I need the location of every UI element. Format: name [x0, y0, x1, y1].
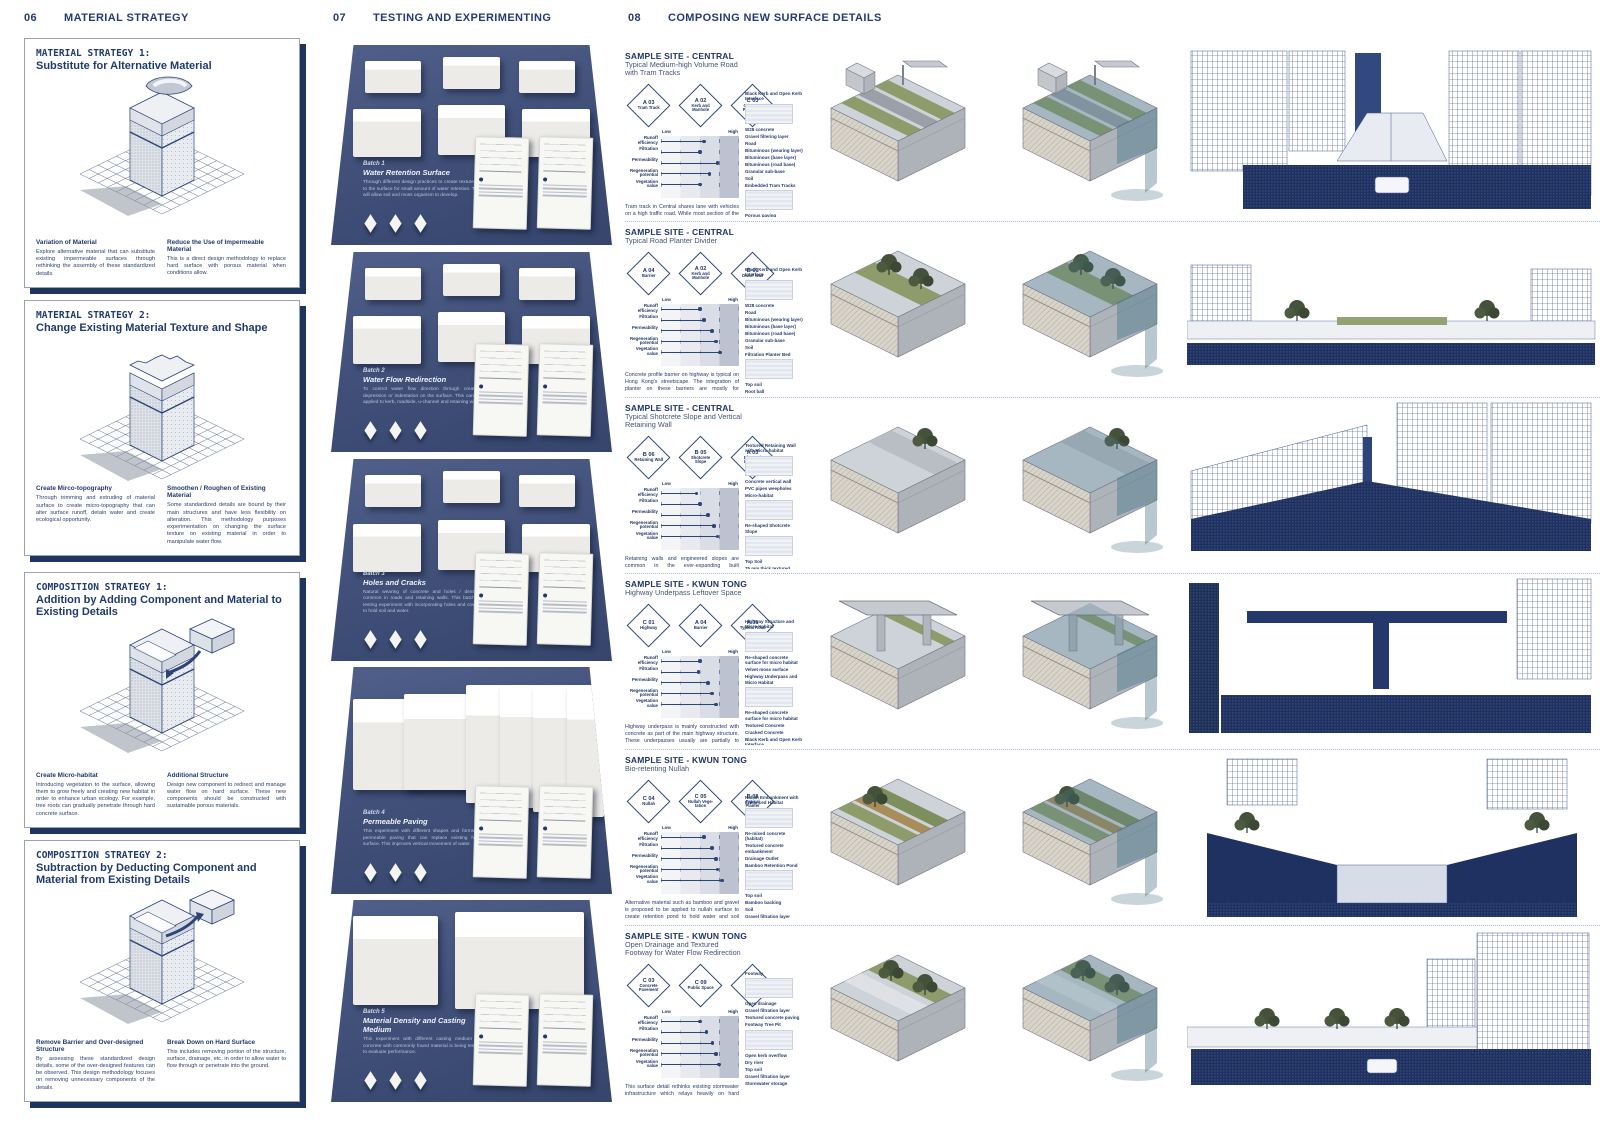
- chart-plot: LowHigh: [661, 656, 739, 718]
- strategy-subheading: Smoothen / Roughen of Existing Material: [167, 485, 286, 499]
- sample-shape-icon: [389, 214, 401, 233]
- strategy-illustration: [25, 83, 299, 215]
- legend-swatch: [745, 632, 793, 652]
- strategy-body: This is a direct design methodology to r…: [167, 256, 286, 278]
- batch-title: Water Retention Surface: [363, 168, 481, 177]
- batch-description: This experiment with different casting m…: [363, 1037, 481, 1056]
- metric-value-dot: [698, 502, 702, 506]
- site-description: Highway underpass is mainly constructed …: [625, 724, 739, 745]
- legend-item: Footway: [745, 971, 803, 976]
- metric-value-line: [661, 504, 700, 505]
- metric-value-line: [661, 704, 716, 705]
- row-divider: [625, 573, 1600, 574]
- legend-item: Bituminous (base layer): [745, 155, 803, 160]
- chart-plot: LowHigh: [661, 832, 739, 894]
- legend-item: Cracked Concrete: [745, 730, 803, 735]
- chart-plot: LowHigh: [661, 1016, 739, 1078]
- axon-render-wet: [997, 51, 1187, 215]
- strategy-subheading: Create Mirco-topography: [36, 485, 155, 492]
- metric-label: Vegetation value: [625, 347, 661, 358]
- spec-card: [537, 343, 594, 436]
- axon-render-wet: [997, 227, 1187, 391]
- diamond-shape: B 06Retaining Wall: [626, 435, 670, 479]
- legend-item: Soil: [745, 345, 803, 350]
- strategy-body: Through trimming and extruding of materi…: [36, 495, 155, 524]
- site-description: Concrete profile barrier on highway is t…: [625, 372, 739, 393]
- metric-label: Vegetation value: [625, 875, 661, 886]
- legend-item: Re-mixed concrete (habitat): [745, 831, 803, 842]
- strategy-illustration: [25, 885, 299, 1029]
- model-block: [365, 61, 421, 93]
- presentation-board: 06MATERIAL STRATEGY07TESTING AND EXPERIM…: [0, 0, 1600, 1130]
- axon-render-wet: [997, 579, 1187, 743]
- site-subtitle: Bio-retenting Nullah: [625, 765, 745, 773]
- legend-item: 75 mm thick textured shotcrete: [745, 566, 803, 569]
- legend-item: Black Kerb and Open Kerb Interface: [745, 91, 803, 102]
- metric-label: Regeneration potential: [625, 521, 661, 532]
- detail-badge: B 05Shotcrete Slope: [679, 436, 721, 478]
- panel-header: 07TESTING AND EXPERIMENTING: [333, 12, 551, 24]
- legend-item: Gravel filtration layer: [745, 1008, 803, 1013]
- metric-value-line: [661, 515, 708, 516]
- legend-item: W28 concrete: [745, 303, 803, 308]
- sample-shape-icon: [389, 421, 401, 440]
- model-photo: Batch 4Permeable PavingThis experiment w…: [331, 667, 612, 894]
- model-photo: Batch 2Water Flow RedirectionTo control …: [331, 252, 612, 452]
- badge-label: Retaining Wall: [634, 458, 663, 462]
- metric-value-dot: [714, 1052, 718, 1056]
- legend-item: Gravel filtration layer: [745, 914, 803, 919]
- batch-label: Batch 4: [363, 810, 481, 816]
- detail-badge: C 01Highway: [627, 604, 669, 646]
- diamond-shape: A 04Barrier: [626, 251, 670, 295]
- model-block: [519, 475, 575, 507]
- strategy-card: MATERIAL STRATEGY 2:Change Existing Mate…: [24, 300, 300, 556]
- strategy-subheading: Create Micro-habitat: [36, 772, 155, 779]
- metric-value-dot: [712, 524, 716, 528]
- strategy-card: MATERIAL STRATEGY 1:Substitute for Alter…: [24, 38, 300, 288]
- axon-render-dry: [805, 51, 995, 215]
- legend-item: Black Kerb and Open Kerb Interface: [745, 737, 803, 745]
- batch-title: Permeable Paving: [363, 817, 481, 826]
- site-subtitle: Typical Shotcrete Slope and Vertical Ret…: [625, 413, 745, 429]
- strategy-kicker: COMPOSITION STRATEGY 1:: [36, 582, 288, 593]
- metric-value-dot: [705, 1030, 709, 1034]
- axon-render-wet: [997, 403, 1187, 567]
- sample-shape-icon: [364, 1071, 376, 1090]
- metric-value-dot: [720, 879, 724, 883]
- site-info: SAMPLE SITE - CENTRALTypical Shotcrete S…: [625, 403, 803, 569]
- legend-item: Bituminous (road base): [745, 162, 803, 167]
- batch-sample-icons: [365, 1075, 426, 1086]
- material-legend: Black Kerb and Open Kerb InterfaceW28 co…: [745, 267, 803, 393]
- panel-header: 06MATERIAL STRATEGY: [24, 12, 189, 24]
- strategy-title: Substitute for Alternative Material: [36, 60, 288, 72]
- detail-badge: A 04Barrier: [627, 252, 669, 294]
- material-legend: Black Kerb and Open Kerb InterfaceW28 co…: [745, 91, 803, 217]
- site-info: SAMPLE SITE - KWUN TONGBio-retenting Nul…: [625, 755, 803, 921]
- section-perspective-drawing: [1187, 401, 1597, 569]
- model-block: [365, 475, 421, 507]
- legend-item: Re-shaped concrete surface for micro hab…: [745, 710, 803, 721]
- metric-value-line: [661, 536, 717, 537]
- material-legend: FootwayOpen drainageGravel filtration la…: [745, 971, 803, 1088]
- legend-item: Concrete vertical wall: [745, 479, 803, 484]
- batch-sample-icons: [365, 218, 426, 229]
- metric-value-line: [661, 837, 704, 838]
- sample-site-row: SAMPLE SITE - CENTRALTypical Road Plante…: [625, 221, 1600, 397]
- metric-label: Permeability: [625, 678, 661, 689]
- legend-swatch: [745, 190, 793, 210]
- section-perspective-drawing: [1187, 49, 1597, 217]
- model-block: [353, 316, 420, 364]
- spec-card: [473, 343, 530, 436]
- strategy-body: Some standardized details are bound by t…: [167, 502, 286, 546]
- legend-item: Drainage Outlet: [745, 856, 803, 861]
- legend-item: Stormwater storage: [745, 1081, 803, 1086]
- site-subtitle: Typical Medium-high Volume Road with Tra…: [625, 61, 745, 77]
- legend-item: Re-shaped concrete surface for micro hab…: [745, 655, 803, 666]
- legend-item: Re-shaped Shotcrete Slope: [745, 523, 803, 534]
- axon-render-dry: [805, 403, 995, 567]
- legend-item: Bituminous (road base): [745, 331, 803, 336]
- metric-value-dot: [714, 340, 718, 344]
- badge-label: Barrier: [634, 274, 663, 278]
- legend-item: Gravel filtration layer: [745, 1074, 803, 1079]
- spec-card: [537, 552, 594, 645]
- metric-value-line: [661, 1032, 706, 1033]
- metric-value-line: [661, 672, 698, 673]
- legend-item: Top Soil: [745, 559, 803, 564]
- strategy-subheading: Reduce the Use of Impermeable Material: [167, 239, 286, 253]
- metric-value-line: [661, 493, 696, 494]
- section-perspective-drawing: [1187, 929, 1597, 1097]
- diamond-shape: A 02Kerb and Manhole: [678, 251, 722, 295]
- diamond-shape: C 04Nullah: [626, 779, 670, 823]
- metric-value-dot: [710, 692, 714, 696]
- legend-item: W28 concrete: [745, 127, 803, 132]
- strategy-kicker: COMPOSITION STRATEGY 2:: [36, 850, 288, 861]
- legend-item: Filtration Planter Bed: [745, 352, 803, 357]
- section-perspective-drawing: [1187, 577, 1597, 745]
- metric-value-line: [661, 309, 700, 310]
- model-photo: Batch 3Holes and CracksNatural wearing o…: [331, 459, 612, 661]
- metric-value-line: [661, 682, 708, 683]
- metric-value-line: [661, 320, 704, 321]
- metric-value-line: [661, 525, 714, 526]
- legend-item: Textured Concrete: [745, 723, 803, 728]
- strategy-body: Design new component to redirect and man…: [167, 782, 286, 811]
- chart-plot: LowHigh: [661, 136, 739, 198]
- metric-value-line: [661, 848, 712, 849]
- panel-header: 08COMPOSING NEW SURFACE DETAILS: [628, 12, 882, 24]
- legend-item: Bamboo backing: [745, 900, 803, 905]
- metric-value-line: [661, 184, 700, 185]
- strategy-kicker: MATERIAL STRATEGY 1:: [36, 48, 288, 59]
- spec-cards: [474, 994, 592, 1086]
- spec-cards: [474, 137, 592, 229]
- metric-value-line: [661, 163, 717, 164]
- legend-item: Soil: [745, 176, 803, 181]
- site-description: Alternative material such as bamboo and …: [625, 900, 739, 921]
- legend-item: Open kerb overflow: [745, 1053, 803, 1058]
- badge-label: Highway: [634, 626, 663, 630]
- metric-value-dot: [706, 513, 710, 517]
- panel-title: TESTING AND EXPERIMENTING: [373, 12, 551, 24]
- metric-value-dot: [698, 1020, 702, 1024]
- panel-title: COMPOSING NEW SURFACE DETAILS: [668, 12, 882, 24]
- metric-value-line: [661, 1053, 716, 1054]
- batch-description: Natural wearing of concrete and holes / …: [363, 590, 481, 615]
- detail-badge: A 04Barrier: [679, 604, 721, 646]
- batch-label: Batch 1: [363, 161, 481, 167]
- batch-title: Holes and Cracks: [363, 578, 481, 587]
- detail-badge: A 02Kerb and Manhole: [679, 252, 721, 294]
- metric-label: Regeneration potential: [625, 169, 661, 180]
- model-block: [443, 57, 499, 89]
- legend-item: Road: [745, 310, 803, 315]
- legend-item: Top soil: [745, 382, 803, 387]
- legend-item: Dry river: [745, 1060, 803, 1065]
- metric-value-dot: [716, 161, 720, 165]
- strategy-kicker: MATERIAL STRATEGY 2:: [36, 310, 288, 321]
- metric-value-dot: [710, 846, 714, 850]
- legend-item: Porous paving: [745, 213, 803, 217]
- axis-low-label: Low: [662, 297, 671, 302]
- axon-render-dry: [805, 755, 995, 919]
- metric-label: Permeability: [625, 326, 661, 337]
- site-subtitle: Typical Road Planter Divider: [625, 237, 745, 245]
- legend-item: Gravel filtering layer: [745, 134, 803, 139]
- badge-label: Kerb and Manhole: [686, 272, 715, 281]
- metric-value-line: [661, 141, 704, 142]
- diamond-shape: C 05Nullah Vege- tation: [678, 779, 722, 823]
- sample-site-row: SAMPLE SITE - KWUN TONGBio-retenting Nul…: [625, 749, 1600, 925]
- diamond-shape: C 01Highway: [626, 603, 670, 647]
- detail-badge: C 05Nullah Vege- tation: [679, 780, 721, 822]
- metric-value-line: [661, 152, 700, 153]
- metric-value-dot: [702, 140, 706, 144]
- site-description: Tram track in Central shares lane with v…: [625, 204, 739, 217]
- strategy-illustration: [25, 345, 299, 483]
- legend-swatch: [745, 978, 793, 998]
- detail-badge: C 04Nullah: [627, 780, 669, 822]
- legend-item: Top soil: [745, 893, 803, 898]
- row-divider: [625, 749, 1600, 750]
- metric-value-dot: [708, 172, 712, 176]
- metric-value-dot: [717, 1063, 721, 1067]
- metric-value-line: [661, 173, 709, 174]
- model-photo: Batch 5Material Density and Casting Medi…: [331, 900, 612, 1102]
- row-divider: [625, 221, 1600, 222]
- strategy-body: Introducing vegetation to the surface, a…: [36, 782, 155, 818]
- legend-item: Bituminous (base layer): [745, 324, 803, 329]
- metric-label: Vegetation value: [625, 180, 661, 191]
- axis-low-label: Low: [662, 825, 671, 830]
- legend-swatch: [745, 1030, 793, 1050]
- strategy-subheading: Remove Barrier and Over-designed Structu…: [36, 1039, 155, 1053]
- axon-render-wet: [997, 755, 1187, 919]
- sample-shape-icon: [389, 863, 401, 882]
- sample-shape-icon: [414, 214, 426, 233]
- legend-item: Root ball: [745, 389, 803, 393]
- detail-badge: C 09Public Space: [679, 964, 721, 1006]
- legend-item: Highway Structure and Micro Habitat: [745, 619, 803, 630]
- legend-swatch: [745, 280, 793, 300]
- badge-label: Public Space: [686, 986, 715, 990]
- axis-low-label: Low: [662, 1009, 671, 1014]
- diamond-shape: C 09Public Space: [678, 963, 722, 1007]
- legend-swatch: [745, 536, 793, 556]
- batch-description: To control water flow direction through …: [363, 387, 481, 406]
- diamond-shape: B 05Shotcrete Slope: [678, 435, 722, 479]
- badge-label: Tram Track: [634, 106, 663, 110]
- metric-value-dot: [714, 703, 718, 707]
- chart-plot: LowHigh: [661, 304, 739, 366]
- legend-item: Textured concrete paving: [745, 1015, 803, 1020]
- batch-description: This experiment with different shapes an…: [363, 829, 481, 848]
- sample-site-row: SAMPLE SITE - CENTRALTypical Medium-high…: [625, 45, 1600, 221]
- metric-label: Vegetation value: [625, 1060, 661, 1071]
- metric-value-line: [661, 869, 717, 870]
- batch-label: Batch 3: [363, 571, 481, 577]
- spec-card: [473, 993, 530, 1086]
- legend-swatch: [745, 104, 793, 124]
- strategy-subheading: Additional Structure: [167, 772, 286, 779]
- strategy-body: This includes removing portion of the st…: [167, 1049, 286, 1071]
- sample-shape-icon: [389, 1071, 401, 1090]
- strategy-card: COMPOSITION STRATEGY 1:Addition by Addin…: [24, 572, 300, 828]
- metric-value-line: [661, 1043, 712, 1044]
- model-block: [353, 109, 420, 157]
- metric-value-line: [661, 661, 700, 662]
- metric-value-line: [661, 693, 712, 694]
- spec-card: [537, 136, 594, 229]
- metric-value-dot: [714, 857, 718, 861]
- spec-card: [537, 785, 594, 878]
- model-block: [443, 264, 499, 296]
- panel-number: 08: [628, 12, 668, 24]
- axis-high-label: High: [728, 297, 738, 302]
- strategy-subheading: Break Down on Hard Surface: [167, 1039, 286, 1046]
- sample-shape-icon: [414, 421, 426, 440]
- legend-item: Black Kerb and Open Kerb Interface: [745, 267, 803, 278]
- section-perspective-drawing: [1187, 753, 1597, 921]
- row-divider: [625, 397, 1600, 398]
- metric-value-dot: [706, 681, 710, 685]
- axis-low-label: Low: [662, 481, 671, 486]
- legend-item: Bituminous (wearing layer): [745, 148, 803, 153]
- batch-sample-icons: [365, 867, 426, 878]
- legend-item: Granular sub-base: [745, 169, 803, 174]
- diamond-shape: A 04Barrier: [678, 603, 722, 647]
- legend-swatch: [745, 359, 793, 379]
- badge-label: Kerb and Manhole: [686, 104, 715, 113]
- detail-badge: A 02Kerb and Manhole: [679, 84, 721, 126]
- model-photo: Batch 1Water Retention SurfaceThrough di…: [331, 45, 612, 245]
- metric-label: Vegetation value: [625, 699, 661, 710]
- legend-item: Top soil: [745, 1067, 803, 1072]
- badge-label: Barrier: [686, 626, 715, 630]
- sample-shape-icon: [414, 1071, 426, 1090]
- sample-shape-icon: [364, 421, 376, 440]
- sample-site-row: SAMPLE SITE - KWUN TONGOpen Drainage and…: [625, 925, 1600, 1101]
- axis-low-label: Low: [662, 129, 671, 134]
- site-description: This surface detail rethinks existing st…: [625, 1084, 739, 1097]
- legend-swatch: [745, 456, 793, 476]
- badge-label: Nullah: [634, 802, 663, 806]
- legend-item: PVC pipes weepholes: [745, 486, 803, 491]
- badge-label: Shotcrete Slope: [686, 456, 715, 465]
- legend-item: Micro-habitat: [745, 493, 803, 498]
- axis-high-label: High: [728, 129, 738, 134]
- spec-card: [537, 993, 594, 1086]
- metric-value-dot: [698, 307, 702, 311]
- model-block: [519, 61, 575, 93]
- batch-label: Batch 2: [363, 368, 481, 374]
- axon-render-dry: [805, 579, 995, 743]
- sample-shape-icon: [364, 214, 376, 233]
- site-info: SAMPLE SITE - CENTRALTypical Road Plante…: [625, 227, 803, 393]
- site-description: Retaining walls and engineered slopes ar…: [625, 556, 739, 569]
- batch-title: Material Density and Casting Medium: [363, 1016, 481, 1034]
- diamond-shape: C 03Concrete Pavement: [626, 963, 670, 1007]
- panel-number: 06: [24, 12, 64, 24]
- sample-shape-icon: [414, 630, 426, 649]
- legend-item: Footway Tree Pit: [745, 1022, 803, 1027]
- metric-value-dot: [698, 150, 702, 154]
- legend-item: Highway Underpass and Micro Habitat: [745, 674, 803, 685]
- sample-site-row: SAMPLE SITE - CENTRALTypical Shotcrete S…: [625, 397, 1600, 573]
- sample-shape-icon: [364, 630, 376, 649]
- strategy-card: COMPOSITION STRATEGY 2:Subtraction by De…: [24, 840, 300, 1102]
- batch-title: Water Flow Redirection: [363, 375, 481, 384]
- diamond-shape: A 03Tram Track: [626, 83, 670, 127]
- spec-card: [473, 785, 530, 878]
- batch-description: Through different design practices to cr…: [363, 180, 481, 199]
- diamond-shape: A 02Kerb and Manhole: [678, 83, 722, 127]
- section-perspective-drawing: [1187, 225, 1597, 393]
- metric-value-line: [661, 1021, 700, 1022]
- legend-item: Bamboo Retention Pond: [745, 863, 803, 868]
- legend-item: Textured concrete embankment: [745, 843, 803, 854]
- spec-card: [473, 136, 530, 229]
- model-block: [519, 268, 575, 300]
- axon-render-dry: [805, 931, 995, 1095]
- metric-label: Regeneration potential: [625, 1049, 661, 1060]
- axis-high-label: High: [728, 649, 738, 654]
- model-block: [365, 268, 421, 300]
- detail-badge: A 03Tram Track: [627, 84, 669, 126]
- site-info: SAMPLE SITE - CENTRALTypical Medium-high…: [625, 51, 803, 217]
- detail-badge: C 03Concrete Pavement: [627, 964, 669, 1006]
- axon-render-wet: [997, 931, 1187, 1095]
- strategy-body: By assessing these standardized design d…: [36, 1056, 155, 1092]
- model-block: [353, 916, 437, 1005]
- metric-value-dot: [698, 659, 702, 663]
- site-info: SAMPLE SITE - KWUN TONGOpen Drainage and…: [625, 931, 803, 1097]
- batch-sample-icons: [365, 634, 426, 645]
- legend-item: Soil: [745, 907, 803, 912]
- metric-value-dot: [702, 318, 706, 322]
- panel-title: MATERIAL STRATEGY: [64, 12, 189, 24]
- batch-label: Batch 5: [363, 1009, 481, 1015]
- spec-cards: [474, 786, 592, 878]
- axon-render-dry: [805, 227, 995, 391]
- legend-item: Velvet moss surface: [745, 667, 803, 672]
- panel-number: 07: [333, 12, 373, 24]
- spec-card: [473, 552, 530, 645]
